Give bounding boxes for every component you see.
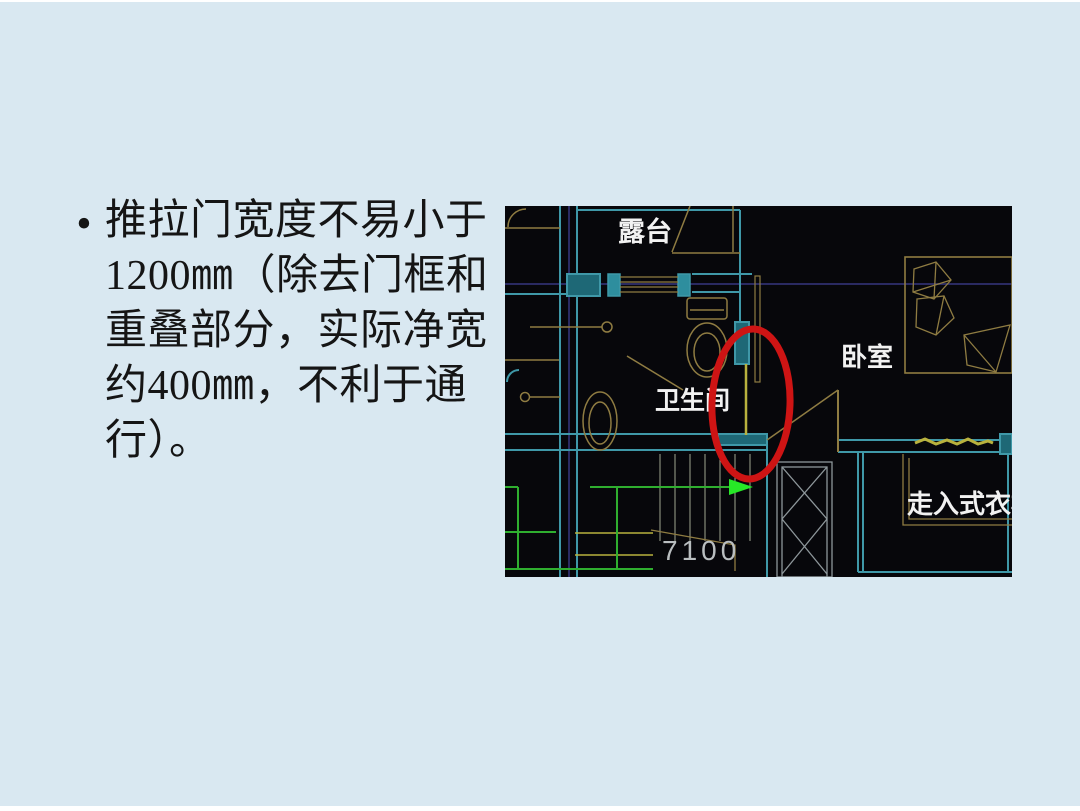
bottom-margin <box>0 806 1080 811</box>
bullet-text: 推拉门宽度不易小于 1200㎜（除去门框和 重叠部分，实际净宽 约400㎜，不利… <box>105 194 505 469</box>
dimension-label: 7100 <box>662 535 740 566</box>
bedroom-label: 卧室 <box>841 342 893 372</box>
text-line-5: 行）。 <box>105 414 505 469</box>
floorplan-svg: 露台 卧室 卫生间 走入式衣柜 7100 <box>505 206 1012 577</box>
text-line-3: 重叠部分，实际净宽 <box>105 304 505 359</box>
cad-floorplan-image: 露台 卧室 卫生间 走入式衣柜 7100 <box>505 206 1012 577</box>
closet-label: 走入式衣柜 <box>907 489 1012 519</box>
text-line-1: 推拉门宽度不易小于 <box>105 194 505 249</box>
bullet-marker: • <box>63 196 105 251</box>
text-line-4: 约400㎜，不利于通 <box>105 359 505 414</box>
terrace-label: 露台 <box>618 216 672 247</box>
presentation-slide: • 推拉门宽度不易小于 1200㎜（除去门框和 重叠部分，实际净宽 约400㎜，… <box>0 0 1080 811</box>
top-margin <box>0 0 1080 2</box>
bathroom-label: 卫生间 <box>655 387 730 415</box>
text-line-2: 1200㎜（除去门框和 <box>105 249 505 304</box>
